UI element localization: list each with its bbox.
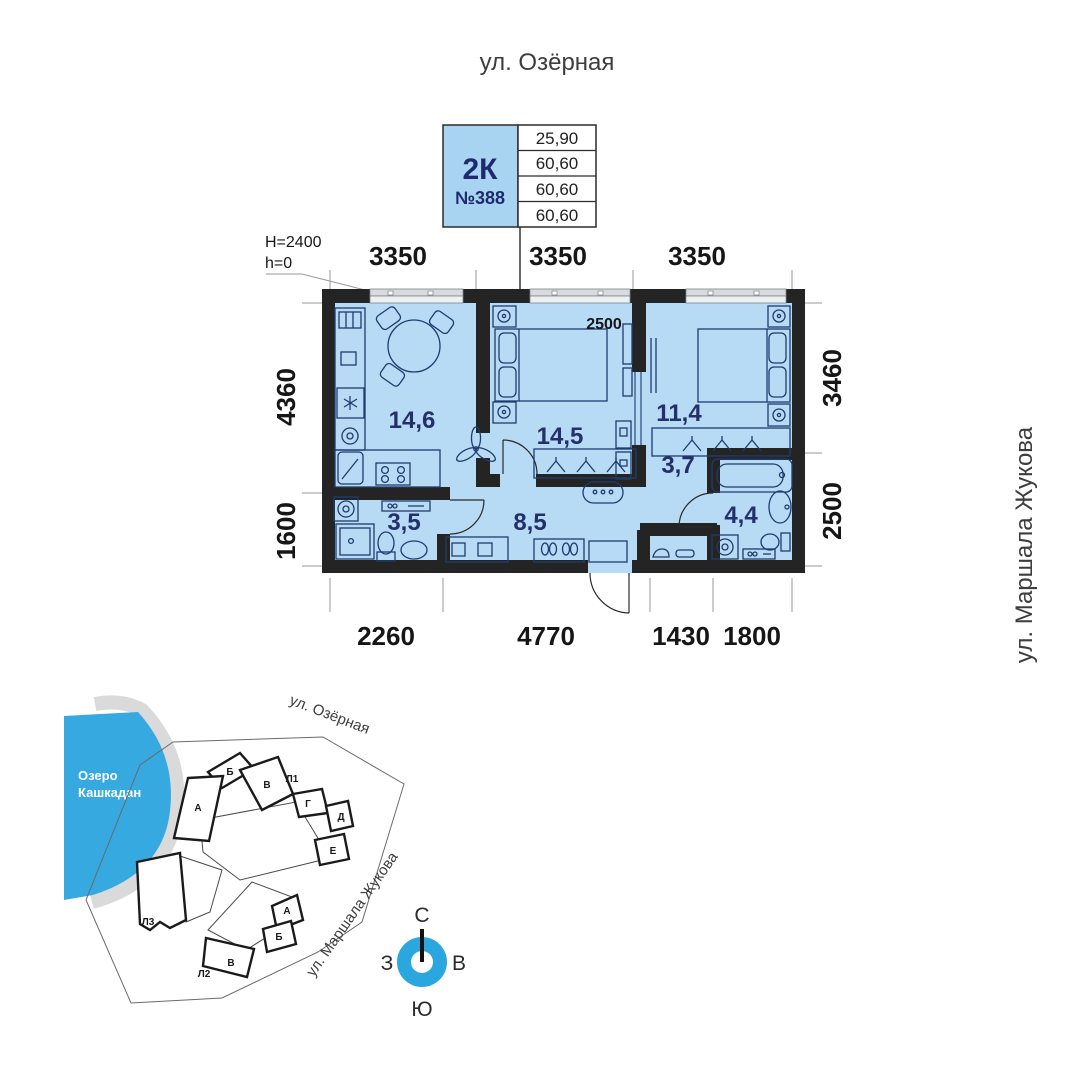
l1-section-v-label: В <box>263 780 270 791</box>
dim-bottom-4: 1800 <box>723 621 781 651</box>
dim-left-1: 4360 <box>271 368 301 426</box>
dim-bottom-1: 2260 <box>357 621 415 651</box>
l1-section-e-label: Е <box>330 846 337 857</box>
room-label-kitchen-living: 14,6 <box>389 407 436 434</box>
compass-south: Ю <box>411 998 432 1021</box>
window-1 <box>370 289 463 303</box>
site-street-ozernaya: ул. Озёрная <box>287 692 372 738</box>
area-value-3: 60,60 <box>536 180 579 199</box>
l1-section-b-label: Б <box>226 767 233 778</box>
room-label-hallway: 8,5 <box>513 509 546 536</box>
room-label-bedroom-1: 14,5 <box>537 423 584 450</box>
dim-right-2: 2500 <box>817 482 847 540</box>
room-label-wc: 3,5 <box>387 509 420 536</box>
building-l1: Б А В Г Д Е Л1 <box>174 753 353 880</box>
l1-section-d-label: Д <box>337 812 344 823</box>
l1-section-a-label: А <box>194 803 201 814</box>
window-3 <box>686 289 786 303</box>
l3-label: Л3 <box>142 917 155 928</box>
room-label-bedroom-2: 11,4 <box>656 400 702 427</box>
floor-plan: 2500 <box>322 289 805 613</box>
area-value-2: 60,60 <box>536 154 579 173</box>
apartment-type: 2К <box>463 153 499 186</box>
dim-bottom-2: 4770 <box>517 621 575 651</box>
drawing: ул. Озёрная ул. Маршала Жукова 2К №388 2… <box>0 0 1080 1080</box>
l1-section-g-label: Г <box>305 799 311 810</box>
lake-name-line2: Кашкадан <box>78 785 141 800</box>
window-2 <box>530 289 630 303</box>
l2-section-a-label: А <box>283 906 290 917</box>
dim-top-3: 3350 <box>668 241 726 271</box>
floorplan-card: ул. Озёрная ул. Маршала Жукова 2К №388 2… <box>0 0 1080 1080</box>
ceiling-height-note: H=2400 <box>265 234 322 251</box>
compass: С Ю З В <box>381 904 466 1021</box>
height-notes: H=2400 h=0 <box>265 234 365 290</box>
area-value-4: 60,60 <box>536 206 579 225</box>
dim-right-1: 3460 <box>817 349 847 407</box>
note-leader <box>266 274 365 290</box>
l2-section-v-label: В <box>227 958 234 969</box>
entrance-door <box>590 573 629 613</box>
site-plan: Озеро Кашкадан Б А В Г Д Е Л1 Л3 <box>64 692 404 1003</box>
apartment-number: №388 <box>455 188 505 208</box>
room-label-bathroom: 4,4 <box>724 502 758 529</box>
lake-name-line1: Озеро <box>78 768 118 783</box>
dim-top-2: 3350 <box>529 241 587 271</box>
compass-north: С <box>414 904 429 927</box>
dim-bottom-3: 1430 <box>652 621 710 651</box>
inner-dimension: 2500 <box>586 316 622 333</box>
apartment-info-box: 2К №388 25,90 60,60 60,60 60,60 <box>443 125 596 306</box>
dim-top-1: 3350 <box>369 241 427 271</box>
compass-west: З <box>381 952 394 975</box>
level-note: h=0 <box>265 255 292 272</box>
building-l3: Л3 <box>137 853 222 930</box>
l2-section-b-label: Б <box>275 932 282 943</box>
l2-label: Л2 <box>198 969 211 980</box>
compass-east: В <box>452 952 466 975</box>
street-label-top: ул. Озёрная <box>480 49 615 76</box>
room-label-corridor: 3,7 <box>661 452 694 479</box>
dim-left-2: 1600 <box>271 502 301 560</box>
windows <box>370 289 786 303</box>
area-value-1: 25,90 <box>536 129 579 148</box>
street-label-right: ул. Маршала Жукова <box>1011 426 1038 663</box>
l1-label: Л1 <box>286 774 299 785</box>
